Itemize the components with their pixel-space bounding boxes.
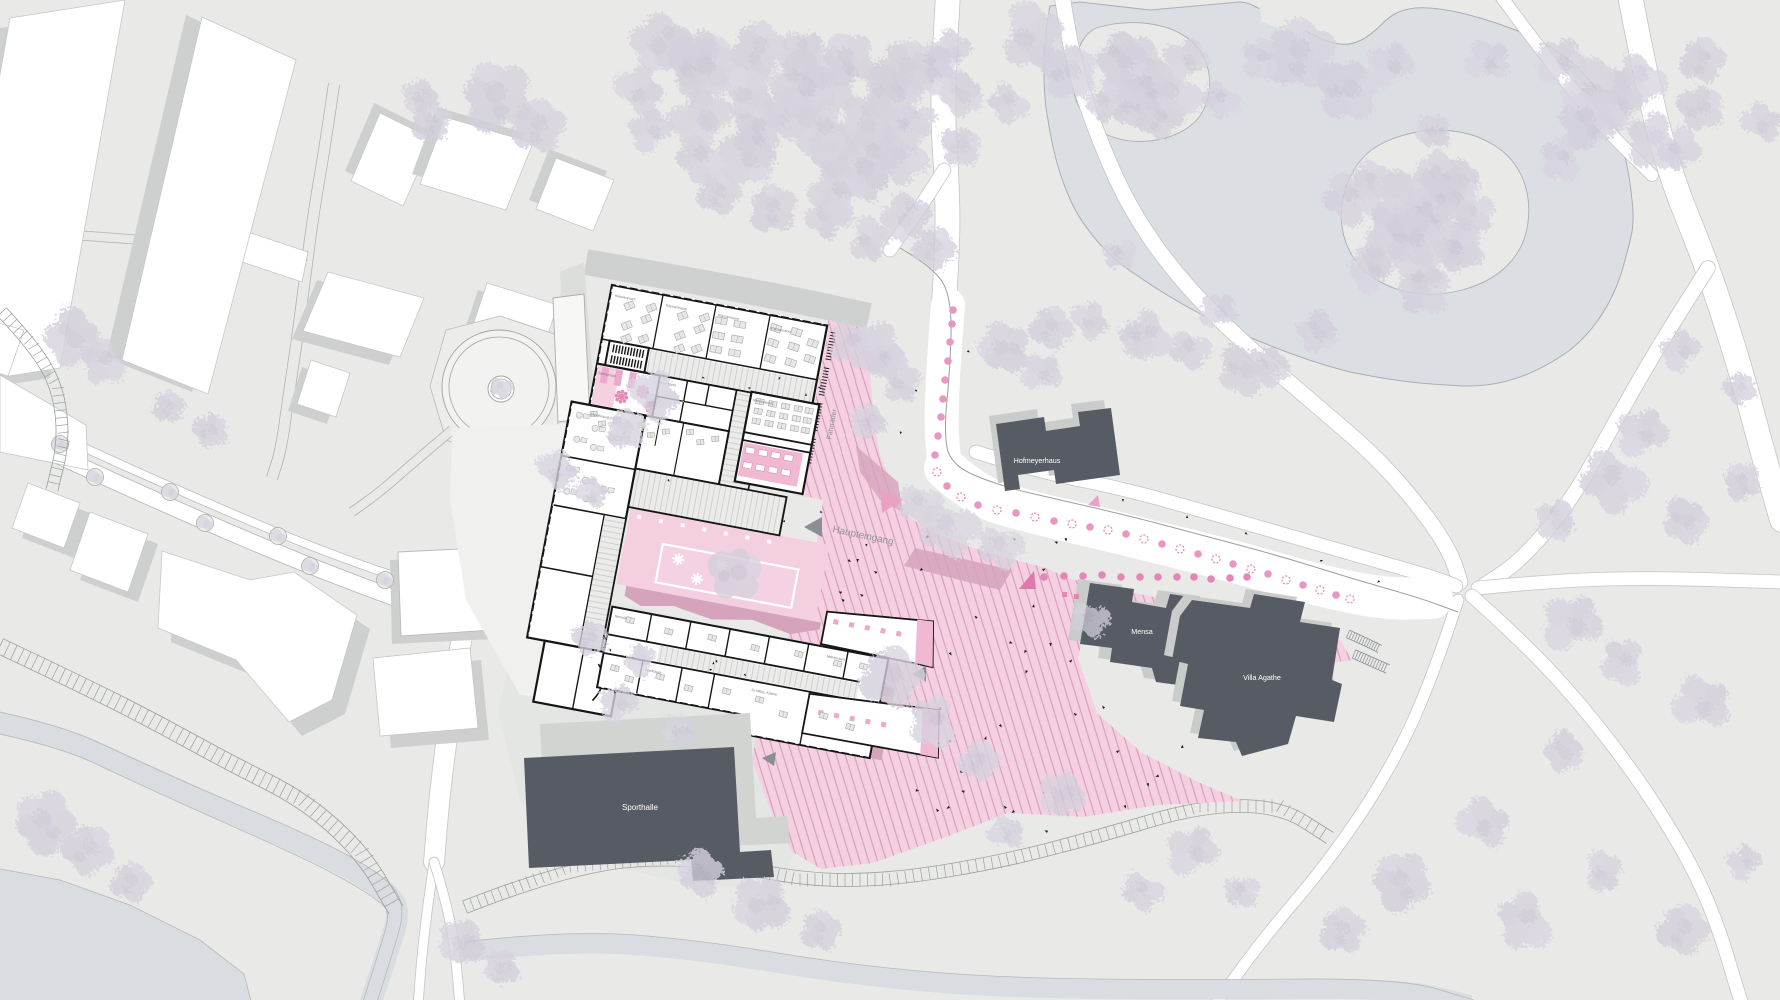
svg-text:Sporthalle: Sporthalle — [622, 803, 659, 812]
svg-text:Hofmeyerhaus: Hofmeyerhaus — [1014, 456, 1061, 465]
svg-text:Mensa: Mensa — [1131, 627, 1153, 636]
svg-text:Villa Agathe: Villa Agathe — [1243, 673, 1281, 682]
